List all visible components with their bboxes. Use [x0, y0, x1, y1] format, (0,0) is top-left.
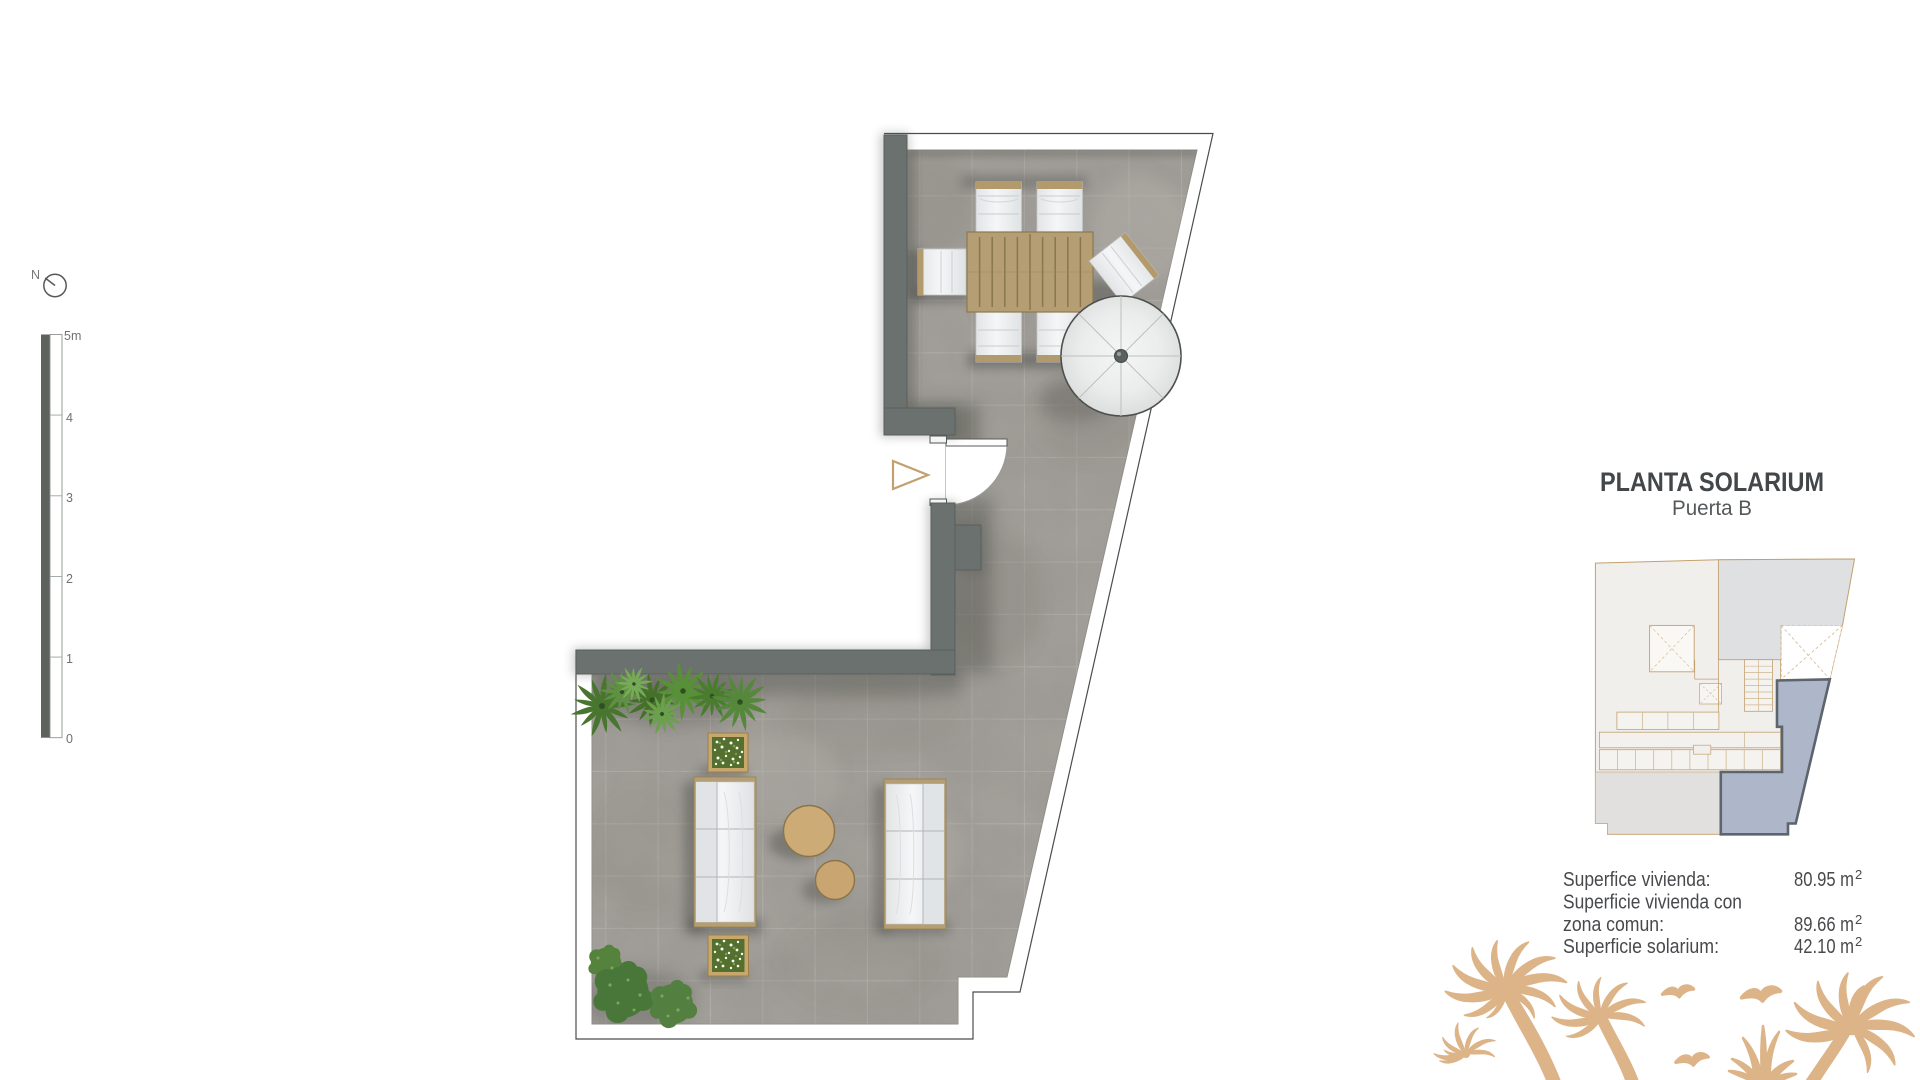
svg-text:Superfice vivienda:: Superfice vivienda:	[1563, 869, 1711, 891]
svg-text:Superficie solarium:: Superficie solarium:	[1563, 936, 1719, 958]
svg-text:Puerta B: Puerta B	[1672, 497, 1752, 520]
svg-text:3: 3	[66, 491, 73, 505]
svg-text:2: 2	[66, 572, 73, 586]
svg-text:zona comun:: zona comun:	[1563, 914, 1664, 936]
svg-text:N: N	[31, 268, 40, 282]
svg-text:2: 2	[1855, 867, 1862, 882]
svg-text:89.66 m: 89.66 m	[1794, 914, 1854, 936]
svg-text:2: 2	[1855, 934, 1862, 949]
svg-text:80.95 m: 80.95 m	[1794, 869, 1854, 891]
svg-text:PLANTA SOLARIUM: PLANTA SOLARIUM	[1600, 467, 1824, 497]
svg-text:1: 1	[66, 652, 73, 666]
svg-text:5m: 5m	[64, 329, 81, 343]
svg-text:2: 2	[1855, 912, 1862, 927]
svg-text:4: 4	[66, 411, 73, 425]
svg-text:42.10 m: 42.10 m	[1794, 936, 1854, 958]
svg-text:0: 0	[66, 732, 73, 746]
svg-text:Superficie vivienda con: Superficie vivienda con	[1563, 892, 1742, 914]
